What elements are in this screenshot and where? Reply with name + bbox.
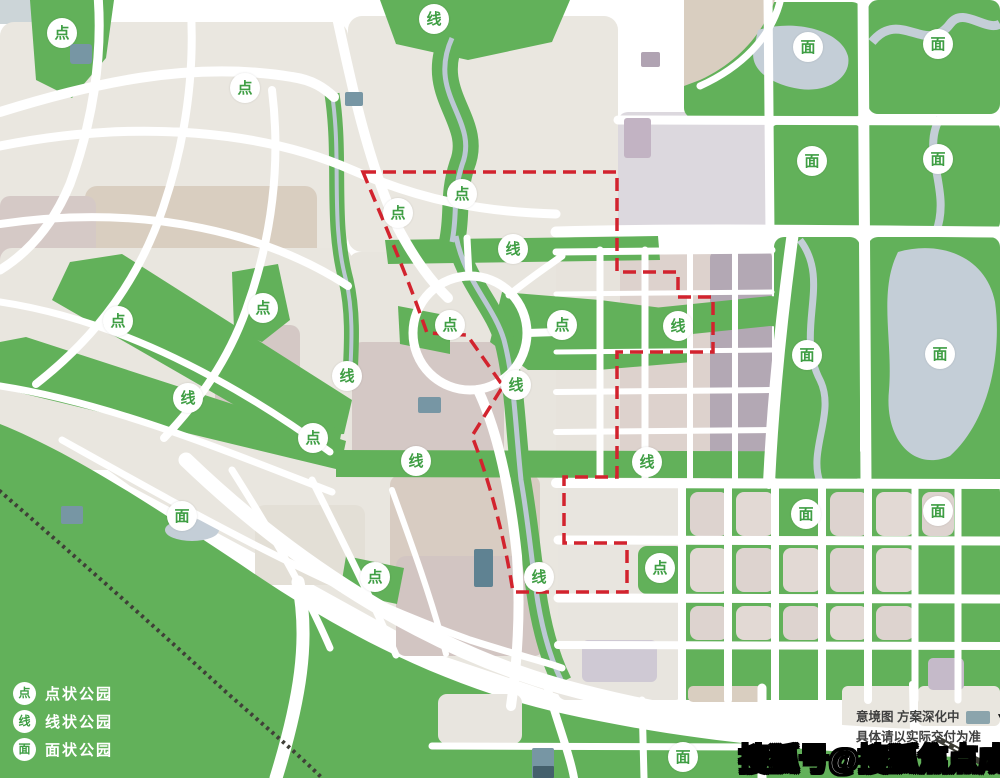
- planning-map-image: 点点点点点点点点点点点线线线线线线线线线面面面面面面面面面面 点 点状公园 线 …: [0, 0, 1000, 778]
- park-marker-line: 线: [501, 370, 531, 400]
- park-marker-area: 面: [668, 742, 698, 772]
- color-swatch: [966, 711, 990, 724]
- park-marker-point: 点: [230, 73, 260, 103]
- park-marker-point: 点: [298, 423, 328, 453]
- legend-item-area-park: 面 面状公园: [13, 735, 113, 763]
- map-canvas: [0, 0, 1000, 778]
- legend-label: 点状公园: [45, 683, 113, 704]
- park-marker-area: 面: [797, 146, 827, 176]
- park-marker-line: 线: [401, 446, 431, 476]
- area-park-badge-icon: 面: [13, 738, 36, 761]
- map-legend: 点 点状公园 线 线状公园 面 面状公园: [13, 679, 113, 763]
- legend-item-line-park: 线 线状公园: [13, 707, 113, 735]
- legend-label: 线状公园: [45, 711, 113, 732]
- park-marker-line: 线: [332, 361, 362, 391]
- park-marker-area: 面: [791, 499, 821, 529]
- park-marker-area: 面: [792, 340, 822, 370]
- park-marker-area: 面: [167, 501, 197, 531]
- park-marker-point: 点: [248, 293, 278, 323]
- park-marker-point: 点: [447, 179, 477, 209]
- dropdown-arrow-icon: ▼: [995, 711, 1000, 723]
- park-marker-point: 点: [103, 306, 133, 336]
- disclaimer-line1: 意境图 方案深化中: [856, 707, 959, 727]
- legend-label: 面状公园: [45, 739, 113, 760]
- watermark-text: 搜狐号@搜狐焦点成都站: [739, 735, 1000, 778]
- park-marker-line: 线: [419, 4, 449, 34]
- park-marker-point: 点: [547, 310, 577, 340]
- legend-item-point-park: 点 点状公园: [13, 679, 113, 707]
- park-marker-line: 线: [663, 311, 693, 341]
- park-marker-point: 点: [435, 310, 465, 340]
- point-park-badge-icon: 点: [13, 682, 36, 705]
- park-marker-area: 面: [923, 144, 953, 174]
- park-marker-point: 点: [383, 198, 413, 228]
- line-park-badge-icon: 线: [13, 710, 36, 733]
- park-marker-point: 点: [360, 562, 390, 592]
- park-marker-line: 线: [632, 447, 662, 477]
- park-marker-point: 点: [645, 553, 675, 583]
- park-marker-line: 线: [173, 383, 203, 413]
- park-marker-area: 面: [793, 32, 823, 62]
- park-marker-area: 面: [925, 339, 955, 369]
- park-marker-point: 点: [47, 18, 77, 48]
- park-marker-line: 线: [498, 234, 528, 264]
- park-marker-line: 线: [524, 562, 554, 592]
- park-marker-area: 面: [923, 29, 953, 59]
- park-marker-area: 面: [923, 496, 953, 526]
